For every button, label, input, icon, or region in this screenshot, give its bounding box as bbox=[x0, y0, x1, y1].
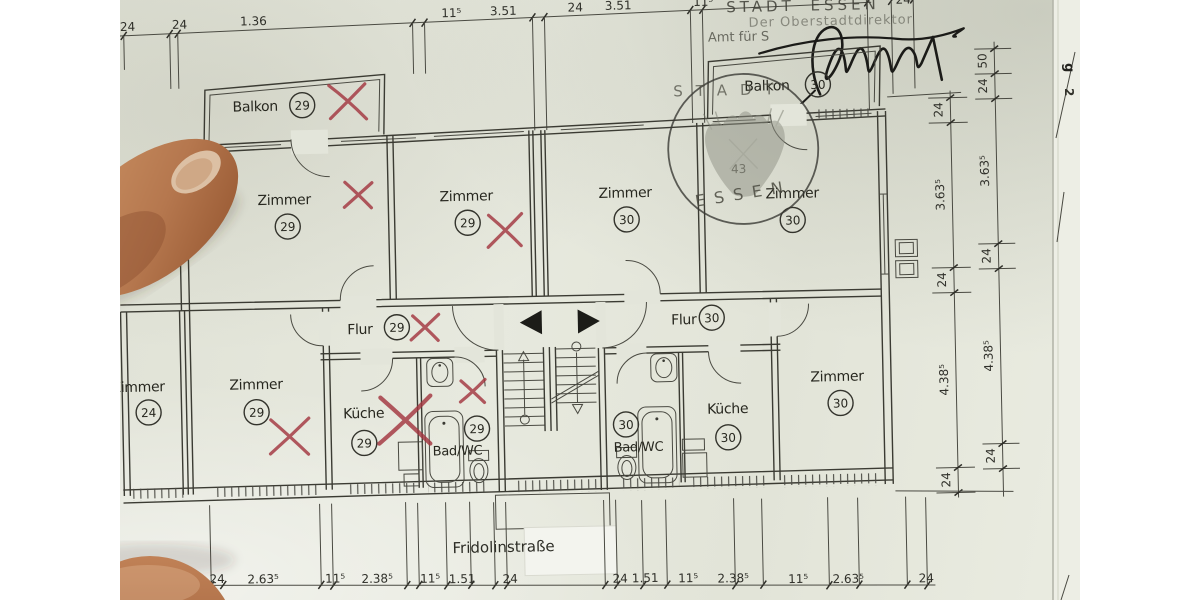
room-label-kueche30: Küche 30 bbox=[707, 401, 749, 450]
dim-label: 24 bbox=[502, 572, 518, 586]
dim-label: 11⁵ bbox=[441, 6, 462, 20]
left-padding bbox=[0, 0, 120, 600]
plan-paper: g 2 24 24 1.36 11⁵ 3.51 24 3.51 11⁵ 24 S… bbox=[120, 0, 1080, 600]
dim-label: 24 bbox=[172, 18, 188, 32]
room-name: Zimmer bbox=[120, 379, 165, 396]
dim-label: 24 bbox=[979, 248, 993, 264]
room-number: 29 bbox=[249, 406, 265, 420]
dimension-ticks bbox=[945, 46, 1007, 496]
underlying-sheet-edge: g 2 bbox=[1053, 0, 1080, 600]
room-label-flur30: Flur 30 bbox=[671, 305, 725, 331]
dim-label: 24 bbox=[120, 20, 135, 34]
room-number: 30 bbox=[619, 213, 635, 227]
street-label: Fridolinstraße bbox=[452, 537, 555, 557]
plan-content: 24 24 1.36 11⁵ 3.51 24 3.51 11⁵ 24 STADT… bbox=[120, 0, 1022, 600]
dim-label: 2.38⁵ bbox=[717, 571, 749, 586]
right-padding bbox=[1080, 0, 1200, 600]
dim-label: 2.63⁵ bbox=[247, 572, 279, 587]
room-number: 29 bbox=[389, 321, 405, 335]
dim-label: 24 bbox=[931, 102, 945, 118]
room-number: 29 bbox=[357, 436, 373, 450]
dim-label: 2.63⁵ bbox=[832, 572, 864, 587]
room-label-flur29: Flur 29 bbox=[347, 314, 410, 340]
dim-label: 11⁵ bbox=[420, 571, 441, 585]
dim-label: 24 bbox=[939, 472, 953, 488]
city-stamp: STADT ESSEN 43 bbox=[667, 72, 820, 225]
red-x-mark bbox=[460, 379, 485, 403]
red-x-mark bbox=[344, 182, 373, 209]
bottom-exterior-wall bbox=[123, 468, 893, 503]
dim-label: 1.51 bbox=[449, 572, 476, 587]
room-label-zimmer29b: Zimmer 29 bbox=[439, 188, 494, 236]
entrance-porch bbox=[495, 493, 610, 529]
dim-label: 11⁵ bbox=[693, 0, 714, 9]
room-number: 29 bbox=[294, 99, 310, 113]
stamp-top-text: STADT bbox=[673, 80, 787, 100]
dim-label: 24 bbox=[984, 448, 998, 464]
room-label-zimmer30a: Zimmer 30 bbox=[598, 185, 653, 233]
dim-label: 24 bbox=[895, 0, 911, 7]
red-x-mark bbox=[488, 214, 523, 248]
room-name: Zimmer bbox=[229, 377, 283, 394]
radiator-29 bbox=[398, 442, 423, 486]
room-number: 24 bbox=[141, 406, 157, 420]
room-name: Bad/WC bbox=[433, 443, 483, 459]
room-name: Bad/WC bbox=[613, 440, 663, 456]
room-number: 30 bbox=[704, 311, 720, 325]
room-name: Zimmer bbox=[257, 192, 311, 209]
photo-of-floor-plan: { "street_label": "Fridolinstraße", "hea… bbox=[0, 0, 1200, 600]
red-x-mark bbox=[411, 314, 440, 341]
dim-label: 24 bbox=[976, 78, 990, 94]
room-label-kueche29: Küche 29 bbox=[343, 406, 385, 456]
dim-label: 24 bbox=[935, 272, 949, 288]
room-number: 30 bbox=[833, 396, 849, 410]
dim-label: 11⁵ bbox=[788, 572, 809, 586]
room-label-badwc29: Bad/WC 29 bbox=[432, 416, 490, 460]
room-name: Balkon bbox=[232, 99, 278, 116]
stamp-number: 43 bbox=[731, 162, 747, 176]
dim-label: 4.38⁵ bbox=[937, 364, 952, 396]
dimension-chain-right: 24 3.63⁵ 24 4.38⁵ 24 50 24 3.63⁵ 24 4.38… bbox=[886, 41, 1021, 499]
room-label-balkon29: Balkon 29 bbox=[232, 92, 315, 119]
dim-label: 4.38⁵ bbox=[981, 340, 996, 372]
floor-plan-drawing: g 2 24 24 1.36 11⁵ 3.51 24 3.51 11⁵ 24 S… bbox=[120, 0, 1080, 600]
room-name: Küche bbox=[707, 401, 748, 418]
radiator-30 bbox=[682, 439, 707, 477]
department-line: Amt für S bbox=[708, 29, 770, 45]
room-number: 30 bbox=[721, 431, 737, 445]
window-symbol bbox=[895, 239, 918, 277]
room-number: 29 bbox=[460, 216, 476, 230]
room-number: 30 bbox=[785, 213, 801, 227]
dim-label: 11⁵ bbox=[678, 571, 699, 585]
balcony-window-hatch bbox=[815, 108, 871, 118]
entrance-arrow-left-icon bbox=[520, 310, 542, 334]
stair-down-arrow bbox=[572, 342, 581, 351]
dim-label: 2.38⁵ bbox=[361, 571, 393, 586]
room-name: Flur bbox=[347, 322, 373, 339]
dim-label: 1.51 bbox=[632, 571, 659, 586]
dim-label: 3.51 bbox=[605, 0, 632, 13]
room-label-zimmer29a: Zimmer 29 bbox=[257, 192, 312, 240]
dim-label: 3.51 bbox=[490, 4, 517, 19]
edge-glyph: g bbox=[1061, 63, 1076, 72]
dim-label: 50 bbox=[975, 53, 989, 69]
dim-label: 11⁵ bbox=[325, 571, 346, 585]
dim-label: 1.36 bbox=[240, 14, 267, 29]
stair-up-arrow bbox=[524, 360, 525, 415]
red-x-mark bbox=[329, 84, 367, 120]
room-label-zimmer29c: Zimmer 29 bbox=[229, 377, 284, 426]
dim-label: 3.63⁵ bbox=[977, 155, 992, 187]
edge-glyph: 2 bbox=[1062, 88, 1076, 96]
dim-label: 3.63⁵ bbox=[933, 179, 948, 211]
stairwell bbox=[503, 342, 600, 432]
dim-label: 24 bbox=[567, 0, 583, 14]
finger-holding-paper bbox=[120, 108, 266, 329]
room-name: Küche bbox=[343, 406, 384, 423]
red-x-mark bbox=[378, 396, 431, 445]
room-label-zimmer24: Zimmer 24 bbox=[120, 379, 166, 426]
room-name: Zimmer bbox=[598, 185, 652, 202]
dim-label: 24 bbox=[918, 571, 934, 585]
red-x-mark bbox=[270, 418, 310, 455]
room-label-zimmer30c: Zimmer 30 bbox=[810, 368, 865, 416]
room-number: 30 bbox=[810, 78, 826, 92]
room-name: Zimmer bbox=[439, 188, 493, 205]
dim-label: 24 bbox=[612, 571, 628, 585]
room-name: Flur bbox=[671, 312, 697, 329]
room-name: Zimmer bbox=[810, 368, 864, 385]
room-number: 29 bbox=[280, 220, 296, 234]
room-number: 29 bbox=[469, 422, 485, 436]
room-number: 30 bbox=[618, 418, 634, 432]
